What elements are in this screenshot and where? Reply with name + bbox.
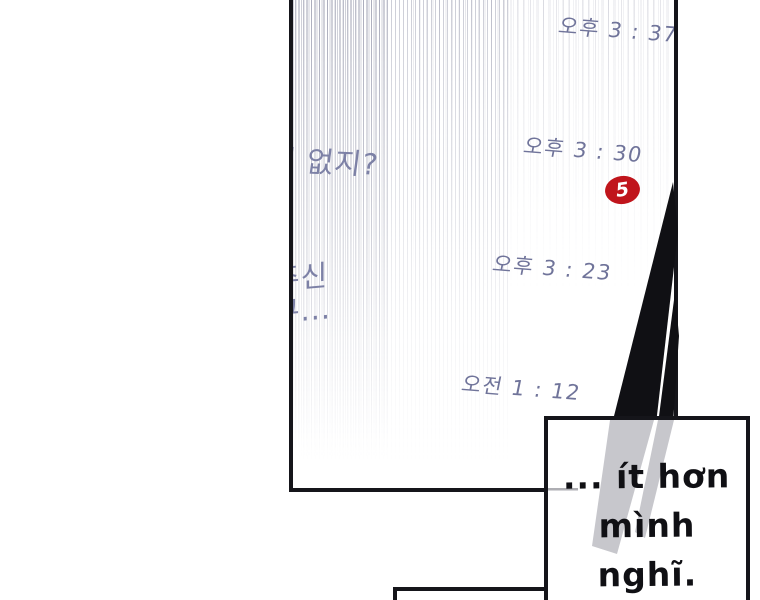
message-timestamp: 오후 3 : 37 xyxy=(556,10,678,49)
next-panel-border-left xyxy=(393,587,397,600)
chat-message-fragment: 주신 쿠... xyxy=(289,259,331,330)
message-timestamp: 오전 1 : 12 xyxy=(459,368,584,407)
caption-text: ... ít hơn mình nghĩ. xyxy=(547,451,746,600)
next-panel-border-top xyxy=(393,587,545,591)
caption-line: mình nghĩ. xyxy=(548,500,747,600)
caption-box: ... ít hơn mình nghĩ. xyxy=(544,416,750,600)
unread-count-badge: 5 xyxy=(603,174,642,207)
caption-line: ... ít hơn xyxy=(547,451,745,502)
message-timestamp: 오후 3 : 30 xyxy=(521,130,646,169)
screen-tone-hatching xyxy=(295,0,510,482)
chat-message-line: 쿠... xyxy=(289,292,331,330)
chat-message-fragment: 이 없지? xyxy=(289,144,381,182)
message-timestamp: 오후 3 : 23 xyxy=(490,248,615,287)
comic-page: 이 없지? 주신 쿠... 오후 3 : 37 오후 3 : 30 오후 3 :… xyxy=(0,0,760,600)
screen-tone-hatching xyxy=(293,0,388,472)
